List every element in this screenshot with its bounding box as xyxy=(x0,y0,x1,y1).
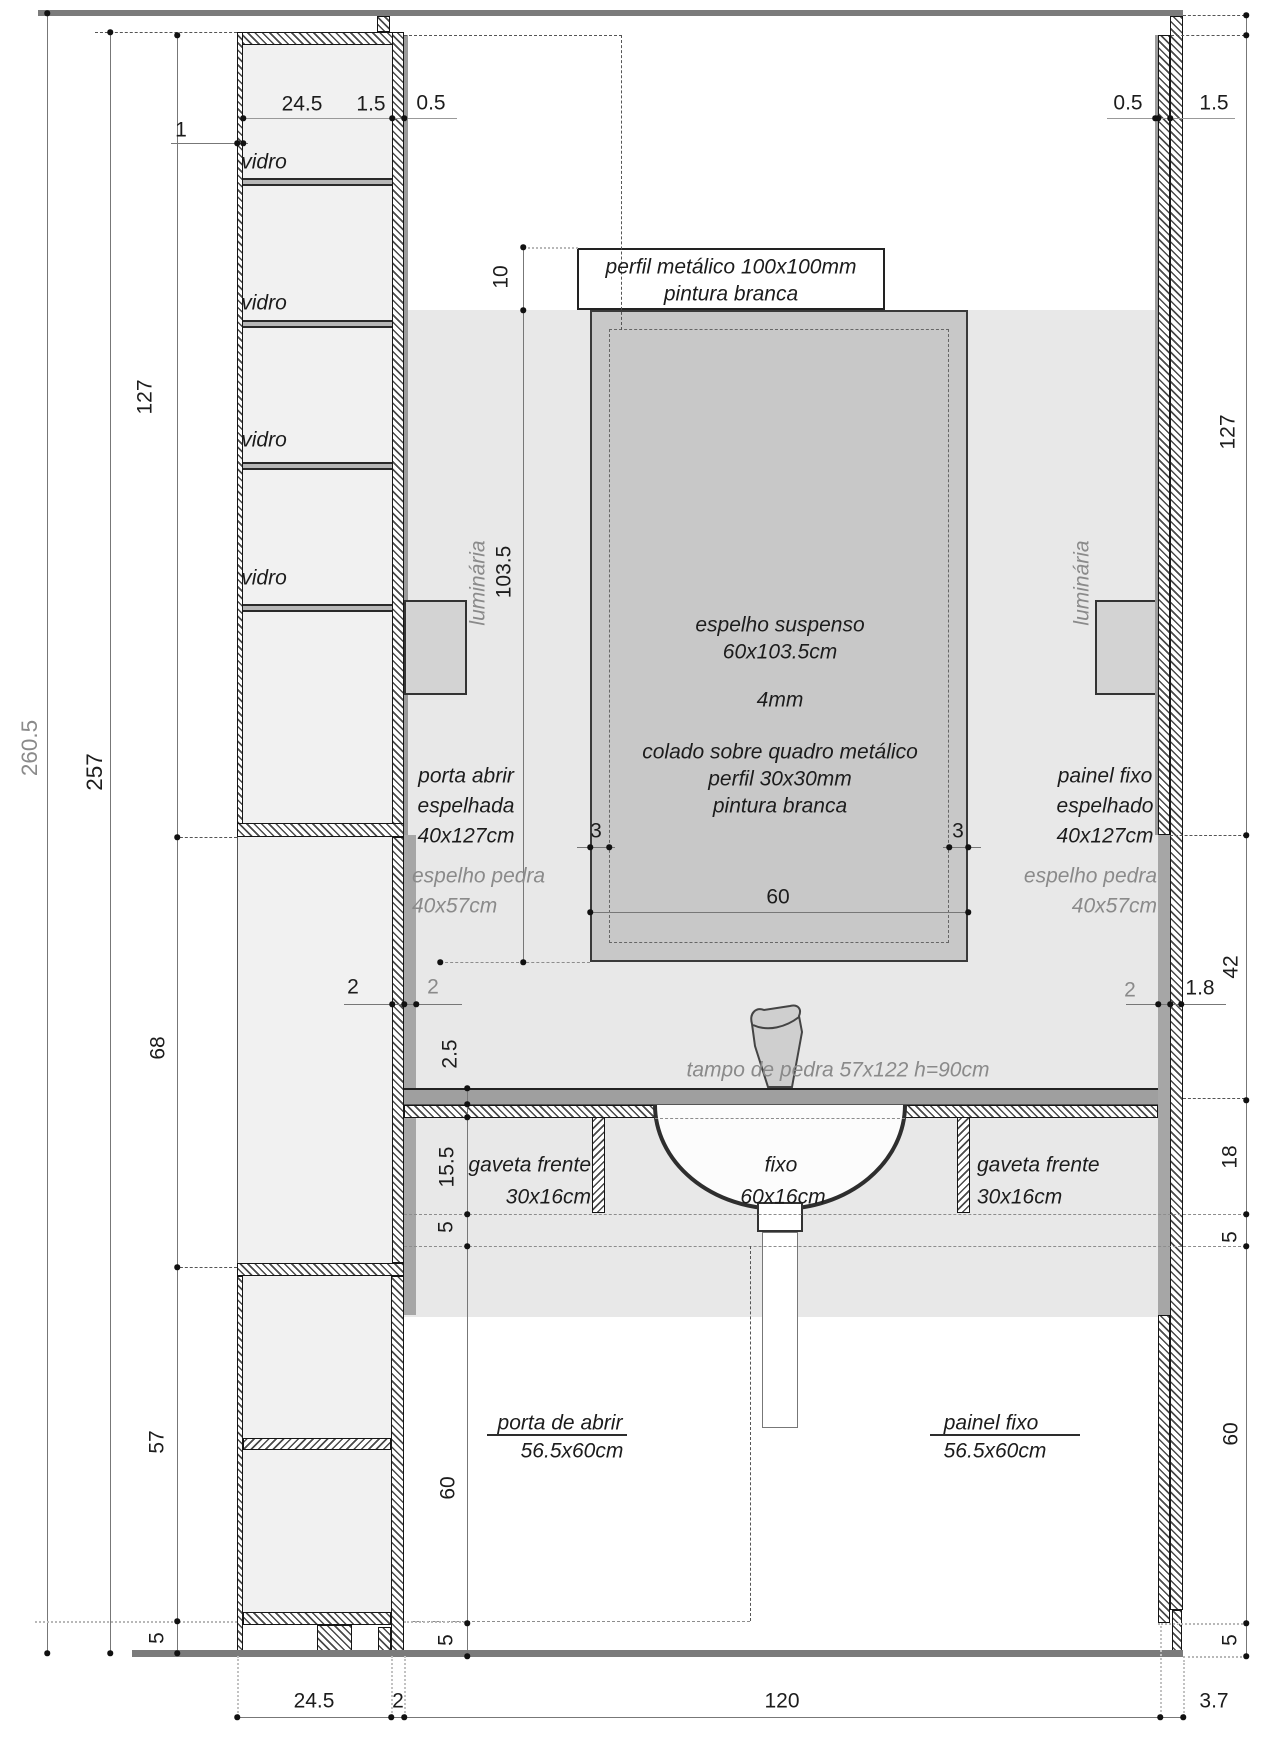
dim-dot xyxy=(1180,1714,1186,1720)
left-door-line1: porta abrir xyxy=(418,766,514,787)
vanity-left-wall xyxy=(392,837,404,1263)
drawer-left-line1: gaveta frente xyxy=(468,1155,591,1176)
counter-board-left xyxy=(404,1105,655,1118)
dim-dot xyxy=(234,1714,240,1720)
dim-dot xyxy=(174,1650,180,1656)
counter-board-right xyxy=(905,1105,1158,1118)
countertop-label: tampo de pedra 57x122 h=90cm xyxy=(687,1060,990,1081)
dim-dot xyxy=(587,909,593,915)
right-plinth xyxy=(1172,1610,1182,1655)
proj-wall-right xyxy=(1183,1660,1185,1716)
leader-profile-top xyxy=(523,247,578,249)
dim-dot xyxy=(1243,32,1249,38)
hidden-recess-bottom xyxy=(404,1246,1246,1247)
dim-dot xyxy=(1155,1001,1161,1007)
dim-dot xyxy=(107,29,113,35)
dim-dot xyxy=(1243,832,1249,838)
glass-shelf-3 xyxy=(243,462,392,470)
dim-mirror-w: 60 xyxy=(766,887,789,908)
dim-line-cab-top xyxy=(245,118,457,119)
plinth-level-right xyxy=(1158,1623,1246,1625)
dim-dot xyxy=(1243,1243,1249,1249)
right-lower-panel xyxy=(1158,1315,1170,1623)
right-panel-line2: espelhado xyxy=(1057,796,1154,817)
leader-right-ceiling xyxy=(1183,15,1245,16)
dim-right-60: 60 xyxy=(1221,1422,1242,1445)
lower-cabinet-plinth-leg xyxy=(317,1625,352,1653)
bottom-door-line1: porta de abrir xyxy=(498,1413,623,1434)
bottom-panel-line1: painel fixo xyxy=(944,1413,1039,1434)
dim-dot xyxy=(464,1243,470,1249)
dim-line-total xyxy=(47,13,48,1653)
fixed-front-line2: 60x16cm xyxy=(740,1187,825,1208)
dim-cab-gap: 0.5 xyxy=(416,93,445,114)
light-label-right: luminária xyxy=(1072,540,1093,625)
dim-dot xyxy=(1243,12,1249,18)
dim-dot xyxy=(946,844,952,850)
floor-level-right xyxy=(1183,1656,1246,1658)
dim-dot xyxy=(401,115,407,121)
ceiling-support-block xyxy=(377,16,390,32)
dim-dot xyxy=(107,1650,113,1656)
dim-dot xyxy=(240,115,246,121)
dim-dot xyxy=(174,1264,180,1270)
glass-shelf-label-1: vidro xyxy=(241,152,287,173)
profile-label-line1: perfil metálico 100x100mm xyxy=(606,257,857,278)
lower-cabinet-top-board xyxy=(237,1263,404,1276)
dim-dot xyxy=(520,307,526,313)
upper-cabinet-right-wall xyxy=(392,32,404,837)
stone-mirror-left-line1: espelho pedra xyxy=(412,866,545,887)
mirror-label-line1: espelho suspenso xyxy=(695,615,864,636)
dim-dot xyxy=(388,1714,394,1720)
dim-dot xyxy=(437,959,443,965)
lower-cabinet-left-wall xyxy=(237,1276,243,1653)
dim-dot xyxy=(1167,115,1173,121)
dim-dot xyxy=(389,115,395,121)
dim-line-wall-thick-right xyxy=(1126,1004,1226,1005)
profile-label-line2: pintura branca xyxy=(664,284,798,305)
dim-dot xyxy=(1243,1211,1249,1217)
dim-line-mirror-chain xyxy=(523,247,524,962)
right-panel-line1: painel fixo xyxy=(1058,766,1153,787)
lower-cabinet-shelf xyxy=(243,1438,391,1450)
dim-left-127: 127 xyxy=(135,379,156,414)
leader-right-counter xyxy=(1183,1098,1245,1099)
stone-mirror-right-line1: espelho pedra xyxy=(1024,866,1157,887)
dim-recess: 5 xyxy=(436,1221,457,1233)
dim-right-stone: 2 xyxy=(1124,980,1136,1001)
dim-dot xyxy=(464,1101,470,1107)
dim-inset-l: 3 xyxy=(590,821,602,842)
dim-dot xyxy=(464,1114,470,1120)
dim-bottom-wall: 2 xyxy=(392,1691,404,1712)
dim-center-plinth: 5 xyxy=(436,1634,457,1646)
upper-cabinet-top-board xyxy=(237,32,404,45)
lower-cabinet-bottom-board xyxy=(243,1612,391,1625)
dim-dot xyxy=(464,1653,470,1659)
dim-dot xyxy=(1243,1097,1249,1103)
drawer-divider-left xyxy=(592,1117,605,1213)
ceiling-line xyxy=(38,10,1183,16)
stone-mirror-right-line2: 40x57cm xyxy=(1072,896,1157,917)
glass-shelf-4 xyxy=(243,604,392,612)
dim-dot xyxy=(965,909,971,915)
dim-mirror-h: 103.5 xyxy=(494,546,515,599)
mirror-edge-sliver xyxy=(404,35,408,835)
dim-left-plinth: 5 xyxy=(147,1632,168,1644)
dim-bottom-panel: 3.7 xyxy=(1199,1691,1228,1712)
dim-drawer-front: 15.5 xyxy=(437,1147,458,1188)
light-label-left: luminária xyxy=(468,540,489,625)
drain-pipe xyxy=(762,1232,798,1428)
bottom-panel-line2: 56.5x60cm xyxy=(944,1441,1047,1462)
dim-right-42: 42 xyxy=(1221,955,1242,978)
drawing-canvas: 260.5 257 127 68 57 5 24.5 1.5 0.5 1 10 … xyxy=(0,0,1266,1739)
bottom-door-line2: 56.5x60cm xyxy=(521,1441,624,1462)
hidden-bowl-edge xyxy=(655,1118,905,1119)
fixed-front-line1: fixo xyxy=(765,1155,798,1176)
dim-dot xyxy=(1155,115,1161,121)
leader-right-127 xyxy=(1170,835,1246,836)
proj-cab-left xyxy=(237,1656,239,1716)
mirror-label-line2: 60x103.5cm xyxy=(723,642,837,663)
left-door-line3: 40x127cm xyxy=(418,826,515,847)
dim-dot xyxy=(174,1618,180,1624)
dim-dot xyxy=(520,959,526,965)
dim-right-127: 127 xyxy=(1218,414,1239,449)
dim-wall-height: 257 xyxy=(84,753,107,791)
stone-mirror-strip-right xyxy=(1158,835,1170,1315)
dim-right-panel: 1.5 xyxy=(1199,93,1228,114)
dim-inset-r: 3 xyxy=(952,821,964,842)
dim-profile-h: 10 xyxy=(491,265,512,288)
dim-dot xyxy=(606,844,612,850)
dim-dot xyxy=(240,140,246,146)
dim-dot xyxy=(234,140,240,146)
hidden-edge-vertical xyxy=(621,35,622,330)
dim-right-plinth: 5 xyxy=(1220,1634,1241,1646)
plinth-level-left xyxy=(35,1621,237,1623)
glass-shelf-label-4: vidro xyxy=(241,568,287,589)
dim-dot xyxy=(1178,1001,1184,1007)
leader-junction-lower xyxy=(175,1267,237,1268)
hidden-drawer-bottom xyxy=(404,1214,1246,1215)
dim-left-68: 68 xyxy=(148,1036,169,1059)
dim-stone-thick: 2 xyxy=(427,977,439,998)
dim-line-mirror-width xyxy=(590,912,968,913)
drawer-right-line2: 30x16cm xyxy=(977,1187,1062,1208)
open-niche xyxy=(237,837,392,1263)
mirror-label-line5: perfil 30x30mm xyxy=(708,769,852,790)
plinth-level-center xyxy=(404,1621,468,1623)
drawer-left-line2: 30x16cm xyxy=(506,1187,591,1208)
dim-dot xyxy=(401,1001,407,1007)
dim-wall-thick: 2 xyxy=(347,977,359,998)
dim-line-left-chain xyxy=(177,35,178,1653)
dim-door-h: 60 xyxy=(438,1476,459,1499)
stone-mirror-left-line2: 40x57cm xyxy=(412,896,497,917)
dim-cab-width: 24.5 xyxy=(282,94,323,115)
dim-dot xyxy=(1243,1653,1249,1659)
leader-mirror-bottom xyxy=(440,962,590,963)
dim-line-wall xyxy=(110,32,111,1653)
dim-dot xyxy=(520,244,526,250)
dim-dot xyxy=(174,32,180,38)
dim-dot xyxy=(44,1650,50,1656)
upper-cabinet-bottom-board xyxy=(237,823,404,837)
lower-cabinet-right-wall xyxy=(391,1276,404,1653)
proj-vanity-right xyxy=(1160,1626,1162,1716)
right-mirror-panel xyxy=(1158,35,1170,835)
mirror-label-line3: 4mm xyxy=(757,690,804,711)
dim-line-bottom xyxy=(237,1717,1183,1718)
dim-dot xyxy=(1167,1001,1173,1007)
dim-dot xyxy=(413,1001,419,1007)
glass-shelf-2 xyxy=(243,320,392,328)
proj-vanity-left xyxy=(404,1656,406,1716)
dim-right-gap: 0.5 xyxy=(1113,93,1142,114)
dim-dot xyxy=(1243,1620,1249,1626)
mirror-label-line6: pintura branca xyxy=(713,796,847,817)
leader-right-paneltop xyxy=(1171,35,1245,36)
dim-cab-wall-r: 1.5 xyxy=(356,94,385,115)
dim-dot xyxy=(464,1620,470,1626)
glass-shelf-1 xyxy=(243,178,392,186)
right-panel-line3: 40x127cm xyxy=(1057,826,1154,847)
dim-counter-thick: 2.5 xyxy=(440,1039,461,1068)
dim-left-57: 57 xyxy=(147,1430,168,1453)
dim-dot xyxy=(401,1714,407,1720)
dim-cab-wall-l: 1 xyxy=(175,120,187,141)
dim-dot xyxy=(587,844,593,850)
dim-total-height: 260.5 xyxy=(19,720,42,776)
mirror-label-line4: colado sobre quadro metálico xyxy=(642,742,918,763)
drawer-divider-right xyxy=(957,1117,970,1213)
bottom-panel-underline xyxy=(930,1434,1080,1436)
light-fixture-left xyxy=(404,600,467,695)
left-door-line2: espelhada xyxy=(418,796,515,817)
drawer-right-line1: gaveta frente xyxy=(977,1155,1100,1176)
bottom-door-underline xyxy=(487,1434,627,1436)
door-panel-split-dashed xyxy=(750,1246,751,1621)
leader-junction-upper xyxy=(175,837,237,838)
dim-bottom-vanity: 120 xyxy=(764,1691,799,1712)
dim-dot xyxy=(389,1001,395,1007)
dim-bottom-cabinet: 24.5 xyxy=(294,1691,335,1712)
dim-dot xyxy=(464,1085,470,1091)
dim-right-wall: 1.8 xyxy=(1185,978,1214,999)
hidden-edge-top xyxy=(404,35,622,36)
glass-shelf-label-2: vidro xyxy=(241,293,287,314)
dim-dot xyxy=(1157,1714,1163,1720)
dim-dot xyxy=(174,834,180,840)
floor-line xyxy=(132,1650,1183,1657)
dim-dot xyxy=(965,844,971,850)
leader-cabinet-top xyxy=(95,32,237,33)
dim-dot xyxy=(464,1211,470,1217)
glass-shelf-label-3: vidro xyxy=(241,430,287,451)
dim-right-18: 18 xyxy=(1220,1145,1241,1168)
dim-dot xyxy=(44,10,50,16)
light-fixture-right xyxy=(1095,600,1158,695)
dim-right-recess: 5 xyxy=(1220,1231,1241,1243)
right-wall-panel xyxy=(1170,16,1183,1610)
